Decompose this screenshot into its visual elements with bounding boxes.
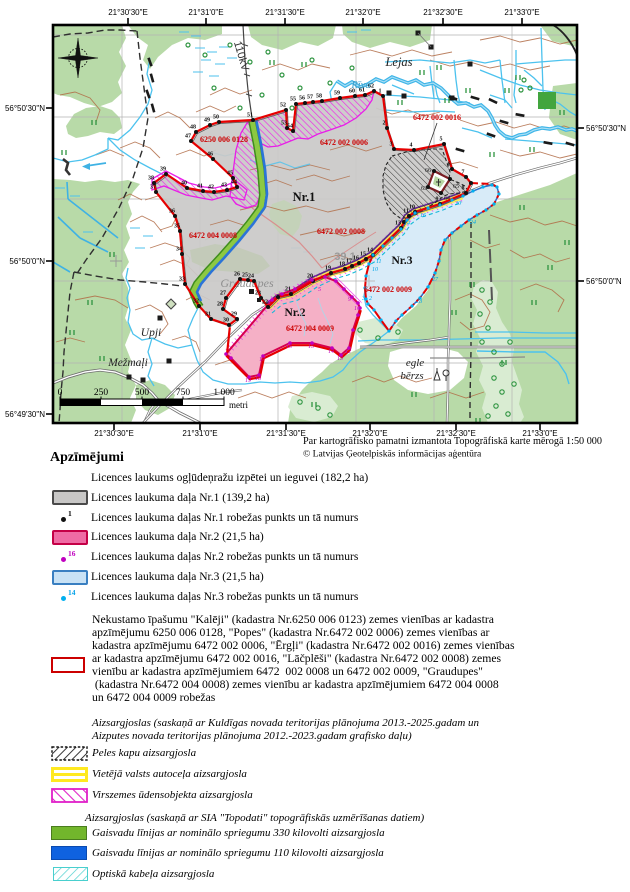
svg-text:4: 4 bbox=[410, 143, 413, 149]
svg-text:Mežmaļi: Mežmaļi bbox=[107, 357, 148, 369]
svg-text:25: 25 bbox=[242, 273, 248, 279]
svg-text:34: 34 bbox=[176, 247, 182, 253]
svg-text:21°31'30"E: 21°31'30"E bbox=[265, 8, 305, 17]
svg-text:6472 004 0008: 6472 004 0008 bbox=[189, 231, 237, 240]
svg-text:8: 8 bbox=[462, 186, 465, 192]
svg-text:66: 66 bbox=[425, 168, 431, 174]
svg-text:Nr.3: Nr.3 bbox=[392, 255, 413, 267]
svg-text:47: 47 bbox=[185, 134, 191, 140]
svg-text:58: 58 bbox=[316, 94, 322, 100]
svg-text:3: 3 bbox=[390, 142, 393, 148]
svg-text:1: 1 bbox=[268, 300, 271, 306]
svg-text:56°50'0"N: 56°50'0"N bbox=[586, 277, 622, 286]
svg-text:35: 35 bbox=[174, 224, 180, 230]
svg-text:21°32'0"E: 21°32'0"E bbox=[345, 8, 380, 17]
svg-text:18: 18 bbox=[255, 376, 261, 382]
svg-text:3: 3 bbox=[361, 296, 365, 302]
svg-text:9: 9 bbox=[348, 297, 351, 303]
svg-text:21°32'30"E: 21°32'30"E bbox=[423, 8, 463, 17]
svg-text:10: 10 bbox=[372, 267, 378, 273]
svg-text:© Latvijas Ģeotelpiskās inform: © Latvijas Ģeotelpiskās informācijas aģe… bbox=[303, 449, 482, 460]
svg-text:30: 30 bbox=[223, 318, 229, 324]
svg-text:14: 14 bbox=[404, 220, 410, 227]
svg-text:21°31'0"E: 21°31'0"E bbox=[188, 8, 223, 17]
svg-text:6472 002 0006: 6472 002 0006 bbox=[320, 138, 368, 147]
svg-text:13: 13 bbox=[337, 356, 343, 362]
svg-text:40: 40 bbox=[181, 181, 187, 187]
svg-text:59: 59 bbox=[334, 91, 340, 97]
svg-text:10: 10 bbox=[354, 306, 360, 312]
svg-text:28: 28 bbox=[217, 302, 223, 308]
svg-text:110kV: 110kV bbox=[231, 40, 251, 73]
svg-text:5: 5 bbox=[440, 137, 443, 143]
svg-text:21: 21 bbox=[285, 287, 291, 293]
svg-text:11: 11 bbox=[376, 259, 382, 265]
svg-text:65: 65 bbox=[453, 184, 459, 190]
svg-text:Upji: Upji bbox=[141, 327, 161, 339]
svg-text:27: 27 bbox=[432, 277, 439, 283]
svg-text:Lejas: Lejas bbox=[384, 55, 412, 69]
svg-text:2: 2 bbox=[383, 121, 386, 127]
svg-text:12: 12 bbox=[345, 349, 351, 355]
svg-text:Par kartogrāfisko pamatni izma: Par kartogrāfisko pamatni izmantota Topo… bbox=[303, 436, 602, 447]
svg-text:37: 37 bbox=[150, 185, 156, 191]
svg-text:6: 6 bbox=[448, 162, 451, 168]
svg-text:bērzs: bērzs bbox=[400, 370, 423, 382]
svg-text:Nr.1: Nr.1 bbox=[293, 190, 316, 204]
svg-text:21°33'0"E: 21°33'0"E bbox=[504, 8, 539, 17]
svg-text:26: 26 bbox=[234, 272, 240, 278]
svg-text:56°50'0"N: 56°50'0"N bbox=[9, 257, 45, 266]
svg-text:5: 5 bbox=[318, 287, 321, 293]
svg-text:6472 002 0009: 6472 002 0009 bbox=[364, 285, 412, 294]
svg-text:51: 51 bbox=[247, 113, 253, 119]
svg-text:19: 19 bbox=[325, 266, 331, 272]
svg-text:48: 48 bbox=[190, 125, 196, 131]
svg-text:56°50'30"N: 56°50'30"N bbox=[586, 124, 626, 133]
svg-text:23: 23 bbox=[255, 291, 261, 297]
svg-text:41: 41 bbox=[197, 184, 203, 190]
svg-text:21°31'0"E: 21°31'0"E bbox=[182, 429, 217, 438]
svg-text:46: 46 bbox=[207, 152, 213, 158]
svg-text:16: 16 bbox=[420, 213, 426, 219]
svg-text:24: 24 bbox=[470, 219, 476, 226]
svg-text:50: 50 bbox=[213, 115, 219, 121]
svg-text:18: 18 bbox=[339, 262, 345, 268]
svg-text:28: 28 bbox=[416, 299, 422, 305]
svg-text:11: 11 bbox=[403, 209, 409, 215]
svg-text:14: 14 bbox=[367, 248, 373, 254]
svg-text:36: 36 bbox=[169, 209, 175, 215]
svg-text:56°50'30"N: 56°50'30"N bbox=[5, 104, 45, 113]
svg-text:17: 17 bbox=[346, 259, 352, 265]
svg-text:6472 002 0008: 6472 002 0008 bbox=[317, 227, 365, 236]
svg-text:57: 57 bbox=[307, 95, 313, 101]
svg-text:16: 16 bbox=[353, 256, 359, 262]
svg-text:metri: metri bbox=[229, 400, 248, 410]
svg-text:6250 006 0128: 6250 006 0128 bbox=[200, 135, 248, 144]
svg-text:egle: egle bbox=[406, 357, 424, 369]
svg-text:32: 32 bbox=[193, 299, 199, 305]
svg-text:43: 43 bbox=[221, 183, 227, 189]
svg-text:52: 52 bbox=[280, 103, 286, 109]
svg-text:15: 15 bbox=[308, 344, 314, 350]
svg-text:29: 29 bbox=[231, 312, 237, 318]
svg-text:13: 13 bbox=[395, 221, 401, 227]
svg-text:Rīva: Rīva bbox=[350, 80, 370, 91]
svg-text:49: 49 bbox=[204, 118, 210, 124]
svg-text:42: 42 bbox=[208, 185, 214, 191]
svg-text:20: 20 bbox=[455, 201, 461, 207]
svg-text:39: 39 bbox=[160, 167, 166, 173]
svg-text:21°30'30"E: 21°30'30"E bbox=[94, 429, 134, 438]
svg-text:2: 2 bbox=[369, 296, 372, 302]
svg-text:7: 7 bbox=[462, 170, 465, 176]
svg-text:17: 17 bbox=[259, 357, 266, 363]
svg-text:33: 33 bbox=[179, 277, 185, 283]
svg-text:63: 63 bbox=[421, 186, 427, 192]
svg-text:31: 31 bbox=[205, 312, 211, 318]
svg-text:56°49'30"N: 56°49'30"N bbox=[5, 410, 45, 419]
svg-text:21°31'30"E: 21°31'30"E bbox=[266, 429, 306, 438]
svg-text:44: 44 bbox=[231, 180, 237, 186]
svg-text:56: 56 bbox=[299, 96, 305, 102]
svg-text:27: 27 bbox=[220, 291, 226, 297]
svg-text:6472 002 0016: 6472 002 0016 bbox=[413, 113, 461, 122]
svg-text:19: 19 bbox=[245, 378, 251, 384]
svg-text:6472 004 0009: 6472 004 0009 bbox=[286, 324, 334, 333]
svg-text:9: 9 bbox=[436, 197, 439, 203]
svg-text:1: 1 bbox=[379, 89, 382, 95]
svg-text:15: 15 bbox=[360, 252, 366, 258]
svg-text:14: 14 bbox=[328, 348, 334, 355]
svg-text:21°30'30"E: 21°30'30"E bbox=[108, 8, 148, 17]
svg-text:54: 54 bbox=[287, 124, 293, 130]
svg-text:38: 38 bbox=[148, 176, 154, 182]
svg-text:45: 45 bbox=[227, 171, 233, 177]
svg-text:10: 10 bbox=[409, 205, 415, 211]
svg-text:16: 16 bbox=[286, 344, 292, 350]
svg-text:55: 55 bbox=[290, 97, 296, 103]
